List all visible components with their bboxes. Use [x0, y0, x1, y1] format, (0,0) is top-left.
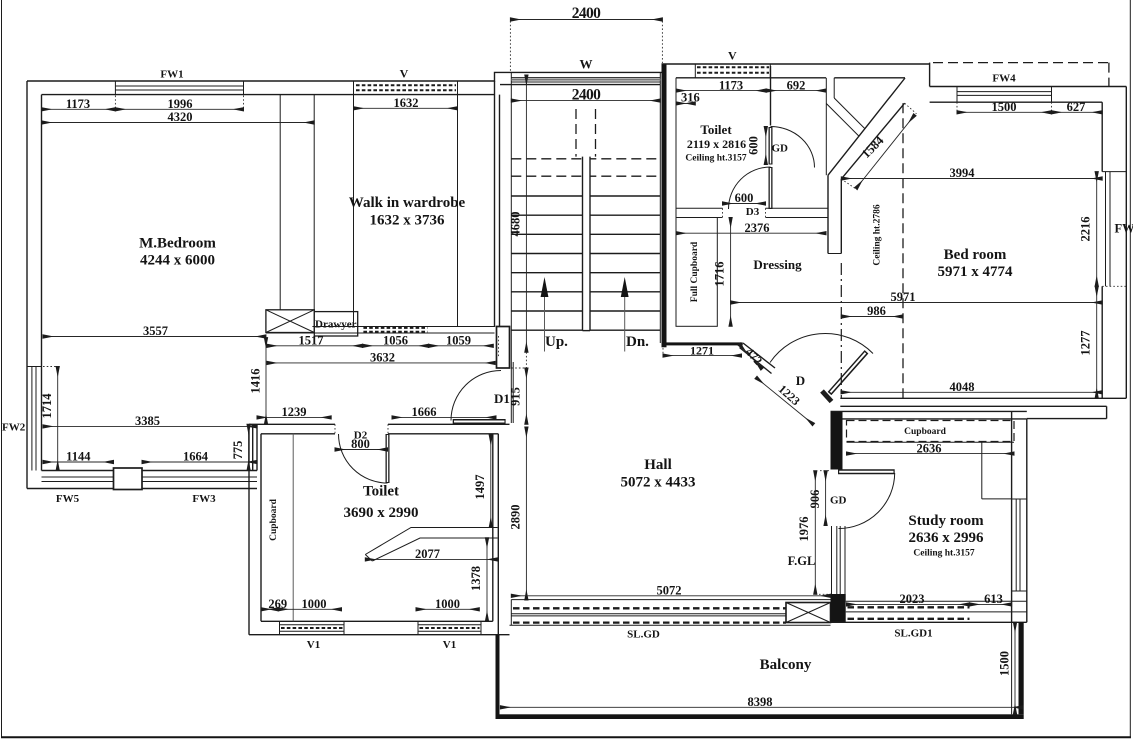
svg-text:3690 x 2990: 3690 x 2990: [344, 505, 419, 521]
svg-text:1976: 1976: [797, 517, 811, 542]
svg-text:1632 x 3736: 1632 x 3736: [370, 213, 446, 229]
svg-text:FW4: FW4: [992, 73, 1016, 85]
svg-text:D: D: [796, 373, 805, 388]
svg-text:1666: 1666: [412, 405, 437, 419]
svg-text:4320: 4320: [168, 110, 193, 124]
svg-text:775: 775: [231, 441, 245, 460]
svg-text:GD: GD: [772, 143, 789, 155]
svg-text:FW1: FW1: [160, 69, 183, 81]
svg-text:1173: 1173: [719, 78, 743, 92]
svg-text:D1: D1: [494, 391, 510, 406]
svg-text:Toilet: Toilet: [363, 484, 399, 500]
svg-text:V: V: [728, 49, 737, 63]
svg-text:Drawyer: Drawyer: [315, 319, 357, 331]
svg-text:986: 986: [867, 304, 886, 318]
svg-text:SL.GD: SL.GD: [627, 629, 660, 641]
svg-text:V: V: [400, 67, 409, 81]
svg-text:4048: 4048: [950, 380, 975, 394]
svg-text:2216: 2216: [1079, 217, 1093, 242]
svg-text:5072: 5072: [657, 584, 682, 598]
svg-text:1497: 1497: [473, 475, 487, 500]
svg-text:1239: 1239: [282, 405, 307, 419]
svg-text:316: 316: [681, 91, 700, 105]
svg-text:692: 692: [787, 78, 806, 92]
svg-text:1378: 1378: [469, 566, 483, 591]
svg-text:915: 915: [509, 387, 523, 406]
svg-text:600: 600: [735, 191, 754, 205]
svg-text:1173: 1173: [66, 97, 90, 111]
svg-text:2119 x 2816: 2119 x 2816: [687, 137, 746, 151]
svg-text:FW3: FW3: [192, 493, 216, 505]
svg-text:2400: 2400: [572, 5, 601, 22]
svg-text:800: 800: [351, 437, 370, 451]
svg-text:Ceiling ht.2786: Ceiling ht.2786: [873, 204, 883, 265]
svg-text:V1: V1: [307, 639, 320, 651]
svg-text:GD: GD: [830, 495, 847, 507]
svg-text:1277: 1277: [1079, 331, 1093, 356]
svg-text:1500: 1500: [992, 100, 1017, 114]
svg-text:FW2: FW2: [2, 422, 26, 434]
svg-text:2023: 2023: [900, 592, 925, 606]
svg-text:5971 x 4774: 5971 x 4774: [938, 264, 1014, 280]
svg-text:Cupboard: Cupboard: [269, 498, 279, 540]
svg-text:1271: 1271: [690, 343, 714, 357]
svg-text:906: 906: [808, 490, 822, 509]
svg-text:Up.: Up.: [545, 334, 568, 350]
svg-text:Cupboard: Cupboard: [904, 427, 946, 437]
svg-text:Balcony: Balcony: [760, 657, 812, 673]
svg-text:1714: 1714: [40, 393, 54, 419]
svg-text:2376: 2376: [745, 221, 770, 235]
svg-text:Walk in wardrobe: Walk in wardrobe: [349, 195, 466, 211]
svg-text:1664: 1664: [183, 450, 209, 464]
svg-text:600: 600: [747, 136, 761, 155]
svg-text:5971: 5971: [891, 290, 916, 304]
svg-text:1000: 1000: [302, 597, 327, 611]
svg-text:3385: 3385: [135, 414, 160, 428]
svg-text:Ceiling ht.3157: Ceiling ht.3157: [685, 154, 746, 164]
svg-text:3557: 3557: [143, 324, 168, 338]
svg-text:Ceiling ht.3157: Ceiling ht.3157: [913, 549, 974, 559]
svg-text:1059: 1059: [446, 334, 471, 348]
svg-text:2636 x 2996: 2636 x 2996: [909, 530, 985, 546]
svg-text:Study room: Study room: [908, 513, 984, 529]
svg-text:2636: 2636: [917, 441, 942, 455]
svg-text:FW: FW: [1115, 222, 1133, 236]
svg-text:2400: 2400: [572, 86, 601, 103]
svg-text:1632: 1632: [394, 96, 419, 110]
svg-text:1500: 1500: [998, 651, 1012, 676]
svg-text:W: W: [580, 57, 593, 72]
svg-text:4680: 4680: [509, 212, 523, 237]
svg-text:1144: 1144: [66, 450, 91, 464]
svg-text:1517: 1517: [299, 334, 324, 348]
svg-text:3994: 3994: [950, 166, 976, 180]
svg-text:5072 x 4433: 5072 x 4433: [621, 475, 696, 491]
svg-text:Toilet: Toilet: [700, 122, 732, 137]
svg-text:Full Cupboard: Full Cupboard: [690, 241, 700, 302]
svg-text:1056: 1056: [383, 334, 408, 348]
svg-text:D3: D3: [746, 206, 760, 218]
svg-text:Bed room: Bed room: [944, 247, 1007, 263]
svg-text:613: 613: [984, 592, 1003, 606]
svg-text:4244 x 6000: 4244 x 6000: [140, 253, 215, 269]
svg-text:F.GL: F.GL: [788, 554, 816, 568]
svg-text:1716: 1716: [713, 262, 727, 287]
svg-text:1000: 1000: [435, 597, 460, 611]
svg-text:M.Bedroom: M.Bedroom: [139, 236, 216, 252]
svg-text:8398: 8398: [748, 695, 773, 709]
svg-text:1996: 1996: [168, 97, 193, 111]
svg-text:FW5: FW5: [56, 493, 80, 505]
svg-text:2077: 2077: [415, 547, 440, 561]
svg-text:Dressing: Dressing: [753, 257, 802, 272]
svg-text:627: 627: [1067, 100, 1086, 114]
svg-text:2890: 2890: [509, 505, 523, 530]
svg-text:Hall: Hall: [644, 457, 672, 473]
svg-text:V1: V1: [443, 639, 456, 651]
svg-text:Dn.: Dn.: [626, 334, 649, 350]
svg-text:3632: 3632: [370, 351, 395, 365]
svg-text:SL.GD1: SL.GD1: [894, 628, 932, 640]
svg-text:1416: 1416: [249, 369, 263, 394]
